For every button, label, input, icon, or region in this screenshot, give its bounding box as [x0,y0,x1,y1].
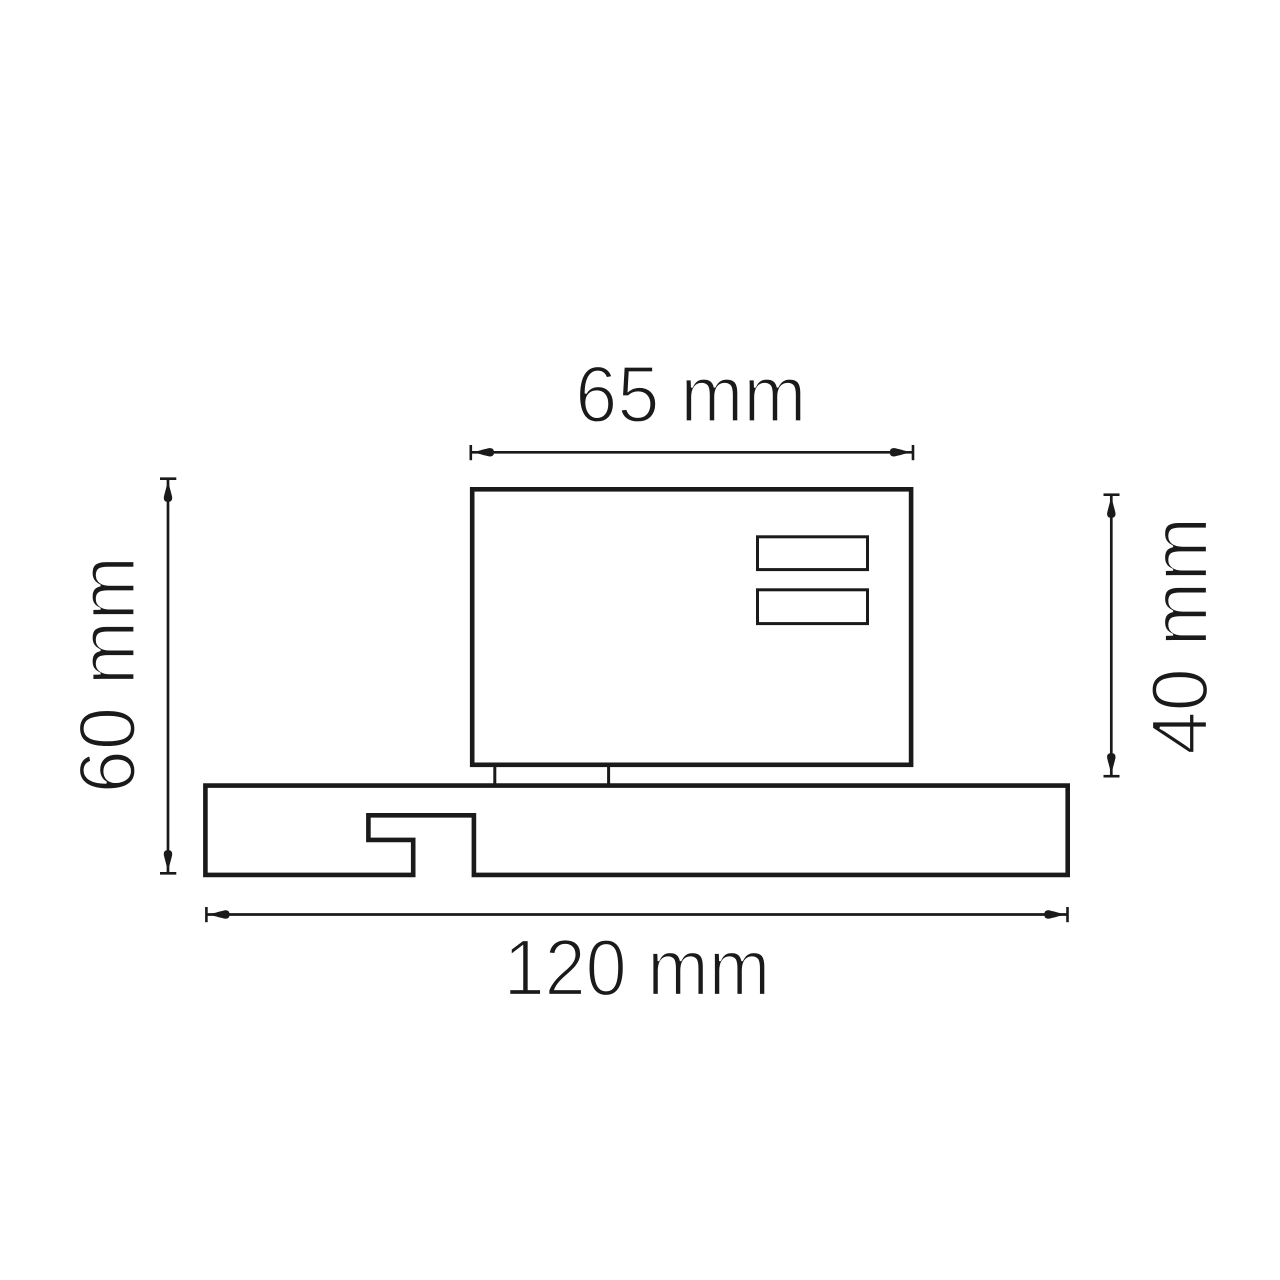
svg-text:60 mm: 60 mm [62,556,151,794]
svg-text:120 mm: 120 mm [504,923,771,1012]
svg-text:40 mm: 40 mm [1135,517,1224,755]
svg-text:65 mm: 65 mm [575,349,806,438]
